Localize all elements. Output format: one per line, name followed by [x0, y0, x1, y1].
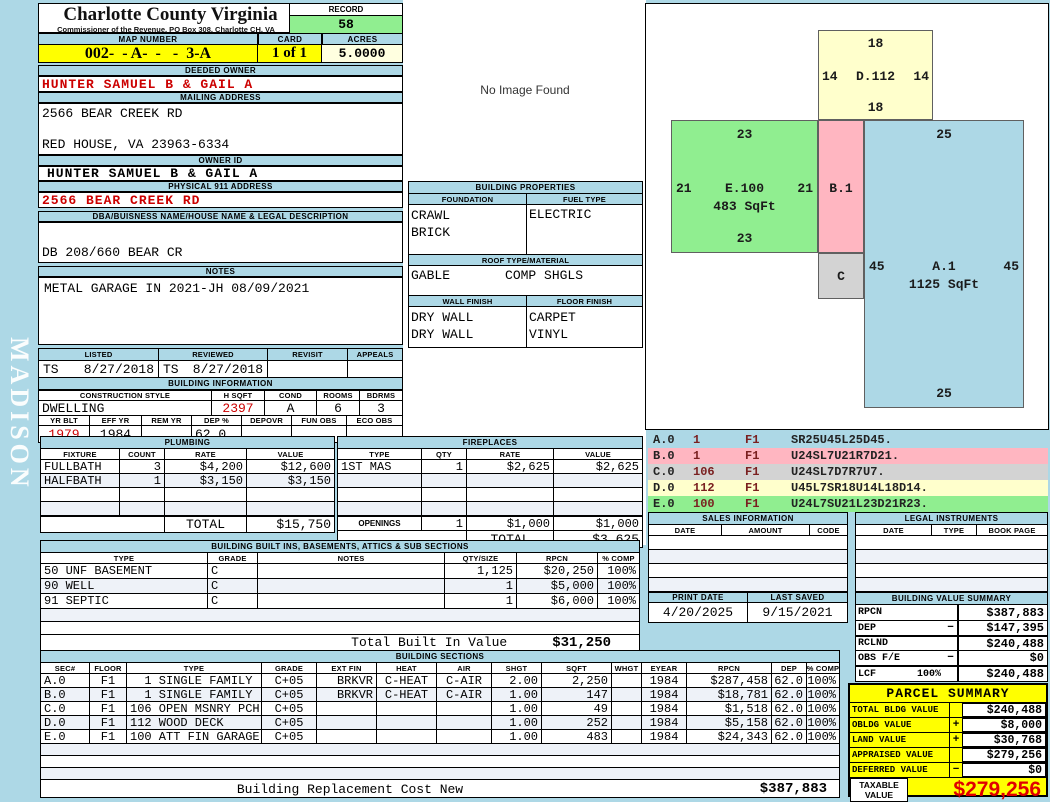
openings-value: $1,000: [553, 517, 642, 530]
vector-floor: F1: [745, 497, 791, 511]
rpcn-cell: $18,781: [686, 688, 771, 701]
building-value-summary-header: BUILDING VALUE SUMMARY: [856, 593, 1047, 605]
empty-row: [41, 501, 334, 515]
empty-row: [856, 577, 1047, 591]
vector-num: 100: [693, 497, 745, 511]
table-row: 90 WELL C 1 $5,000 100%: [41, 578, 639, 593]
acres-value: 5.0000: [322, 45, 403, 63]
comp-cell: 100%: [597, 579, 639, 593]
notes-cell: [257, 579, 444, 593]
floor-cell: F1: [89, 674, 126, 687]
grade-cell: C+05: [261, 674, 316, 687]
shgt-cell: 1.00: [491, 702, 541, 715]
building-properties-header: BUILDING PROPERTIES: [409, 182, 642, 194]
vector-num: 106: [693, 465, 745, 479]
sec-cell: C.0: [41, 702, 89, 715]
whgt-cell: [611, 702, 641, 715]
table-row: 91 SEPTIC C 1 $6,000 100%: [41, 593, 639, 608]
empty-row: [856, 549, 1047, 563]
fuel-type-label: FUEL TYPE: [526, 194, 642, 204]
revisit-label: REVISIT: [267, 349, 347, 360]
sec-cell: B.0: [41, 688, 89, 701]
appeals-cell: [347, 361, 402, 377]
empty-row: [41, 743, 839, 755]
vector-row: C.0106F1U24SL7D7R7U7.: [648, 464, 1048, 480]
vector-code: D.0: [648, 481, 693, 495]
listed-date: 8/27/2018: [84, 362, 154, 377]
empty-row: [649, 563, 847, 577]
floor-col-label: FLOOR: [89, 663, 126, 673]
qty-col-label: QTY/SIZE: [444, 553, 516, 563]
acres-label: ACRES: [322, 33, 403, 45]
notes-box: METAL GARAGE IN 2021-JH 08/09/2021: [38, 277, 403, 345]
floor-finish-label: FLOOR FINISH: [526, 296, 642, 306]
bdrms-label: BDRMS: [359, 391, 402, 400]
extfin-cell: [316, 716, 376, 729]
foundation-line2: BRICK: [411, 225, 450, 240]
dep-cell: 62.0: [771, 674, 806, 687]
dim-bottom: 18: [819, 100, 932, 115]
type-cell: 1 SINGLE FAMILY: [126, 688, 261, 701]
foundation-label: FOUNDATION: [409, 194, 526, 204]
taxable-value-row: TAXABLEVALUE $279,256: [850, 778, 1046, 802]
floor-cell: F1: [89, 688, 126, 701]
parcel-sign: +: [950, 718, 962, 732]
rpcn-cell: $1,518: [686, 702, 771, 715]
summary-row: DEP − $147,395: [856, 620, 1047, 635]
fireplaces-table: FIREPLACES TYPE QTY RATE VALUE 1ST MAS 1…: [337, 436, 643, 548]
dim-top: 25: [865, 127, 1023, 142]
rpcn-col-label: RPCN: [686, 663, 771, 673]
print-date-label: PRINT DATE: [648, 592, 748, 603]
building-sketch-canvas: 23 21 E.100 21 483 SqFt 23 18 14 D.112 1…: [645, 3, 1049, 430]
grade-cell: C: [207, 594, 257, 608]
whgt-cell: [611, 674, 641, 687]
reviewed-label: REVIEWED: [158, 349, 267, 360]
parcel-row: DEFERRED VALUE − $0: [850, 763, 1046, 778]
rate-cell: $3,150: [164, 474, 246, 487]
grade-cell: C+05: [261, 702, 316, 715]
sec-cell: A.0: [41, 674, 89, 687]
empty-row: [41, 608, 639, 621]
parcel-value: $8,000: [962, 718, 1046, 732]
section-name: E.100: [672, 181, 817, 196]
summary-value: $147,395: [957, 621, 1047, 635]
sqft-cell: 252: [541, 716, 611, 729]
summary-row: LCF100% $240,488: [856, 665, 1047, 681]
extfin-cell: [316, 730, 376, 743]
grade-cell: C+05: [261, 716, 316, 729]
bookpage-col-label: BOOK PAGE: [976, 525, 1047, 535]
dep-cell: 62.0: [771, 702, 806, 715]
qty-col-label: QTY: [421, 449, 466, 459]
qty-cell: 1: [444, 594, 516, 608]
reviewed-date: 8/27/2018: [193, 362, 263, 377]
floor-line1: CARPET: [529, 310, 576, 325]
grade-cell: C: [207, 579, 257, 593]
code-col-label: CODE: [809, 525, 847, 535]
shgt-col-label: SHGT: [491, 663, 541, 673]
table-row: 50 UNF BASEMENT C 1,125 $20,250 100%: [41, 563, 639, 578]
shgt-cell: 1.00: [491, 730, 541, 743]
amount-col-label: AMOUNT: [721, 525, 809, 535]
mailing-address-box: 2566 BEAR CREEK RD RED HOUSE, VA 23963-6…: [38, 103, 403, 155]
summary-sign: [944, 637, 957, 650]
built-ins-total-label: Total Built In Value: [351, 635, 507, 650]
grade-col-label: GRADE: [261, 663, 316, 673]
deeded-owner-label: DEEDED OWNER: [38, 65, 403, 76]
section-name: B.1: [819, 181, 863, 196]
qty-cell: 1,125: [444, 564, 516, 578]
last-saved-group: LAST SAVED 9/15/2021: [748, 592, 848, 623]
summary-value: $240,488: [957, 637, 1047, 650]
summary-sign: [944, 667, 957, 681]
vector-code: E.0: [648, 497, 693, 511]
vector-num: 1: [693, 449, 745, 463]
parcel-sign: −: [950, 763, 962, 777]
cond-value: A: [264, 401, 316, 415]
parcel-value: $240,488: [962, 703, 1046, 717]
rpcn-cell: $24,343: [686, 730, 771, 743]
dep-cell: 62.0: [771, 716, 806, 729]
sketch-section-C: C: [818, 253, 864, 299]
dim-top: 18: [819, 36, 932, 51]
parcel-row: OBLDG VALUE + $8,000: [850, 718, 1046, 733]
rpcn-cell: $5,158: [686, 716, 771, 729]
plumbing-total-row: TOTAL $15,750: [41, 515, 334, 532]
parcel-sign: [950, 703, 962, 717]
eyear-cell: 1984: [641, 688, 686, 701]
listed-cell: TS8/27/2018: [39, 361, 158, 377]
rpcn-cell: $5,000: [516, 579, 597, 593]
air-cell: [436, 716, 491, 729]
shgt-cell: 1.00: [491, 688, 541, 701]
parcel-summary-panel: PARCEL SUMMARY TOTAL BLDG VALUE $240,488…: [848, 683, 1048, 797]
value-col-label: VALUE: [553, 449, 642, 459]
built-ins-table: BUILDING BUILT INS, BASEMENTS, ATTICS & …: [40, 540, 640, 651]
sqft-cell: 483: [541, 730, 611, 743]
table-row: A.0F1 1 SINGLE FAMILYC+05BRKVRC-HEATC-AI…: [41, 673, 839, 687]
table-row: 1ST MAS 1 $2,625 $2,625: [338, 459, 642, 473]
heat-cell: C-HEAT: [376, 674, 436, 687]
notes-cell: [257, 564, 444, 578]
openings-qty: 1: [421, 517, 466, 530]
dba-value: DB 208/660 BEAR CR: [42, 245, 182, 260]
dim-bottom: 23: [672, 231, 817, 246]
funobs-label: FUN OBS: [291, 416, 346, 425]
owner-id-value: HUNTER SAMUEL B & GAIL A: [38, 166, 403, 181]
plumbing-total-label: TOTAL: [164, 517, 246, 532]
table-row: B.0F1 1 SINGLE FAMILYC+05BRKVRC-HEATC-AI…: [41, 687, 839, 701]
fixture-cell: HALFBATH: [41, 474, 119, 487]
table-row: C.0F1106 OPEN MSNRY PCHC+051.00491984$1,…: [41, 701, 839, 715]
heat-cell: [376, 730, 436, 743]
count-col-label: COUNT: [119, 449, 164, 459]
wall-line1: DRY WALL: [411, 310, 473, 325]
sqft-cell: 2,250: [541, 674, 611, 687]
date-col-label: DATE: [856, 525, 931, 535]
page-title: Charlotte County Virginia: [53, 4, 288, 26]
fuel-type-value: ELECTRIC: [526, 205, 642, 254]
vector-row: B.01F1U24SL7U21R7D21.: [648, 448, 1048, 464]
building-info-table: BUILDING INFORMATION CONSTRUCTION STYLE …: [38, 377, 403, 443]
ecoobs-label: ECO OBS: [346, 416, 402, 425]
last-saved-label: LAST SAVED: [748, 592, 848, 603]
floor-cell: F1: [89, 716, 126, 729]
type-cell: 112 WOOD DECK: [126, 716, 261, 729]
value-cell: $12,600: [246, 460, 334, 473]
building-info-header: BUILDING INFORMATION: [39, 378, 402, 390]
whgt-cell: [611, 730, 641, 743]
card-group: CARD 1 of 1: [258, 33, 322, 63]
built-ins-header: BUILDING BUILT INS, BASEMENTS, ATTICS & …: [41, 541, 639, 553]
rooms-value: 6: [316, 401, 359, 415]
map-number-group: MAP NUMBER 002- - A- - - 3-A: [38, 33, 258, 63]
empty-row: [649, 549, 847, 563]
type-col-label: TYPE: [931, 525, 976, 535]
grade-cell: C+05: [261, 688, 316, 701]
roof-type-value: GABLE: [409, 266, 450, 283]
sketch-section-E: 23 21 E.100 21 483 SqFt 23: [671, 120, 818, 253]
last-saved-value: 9/15/2021: [748, 603, 848, 623]
dim-right: 21: [797, 181, 813, 196]
vector-floor: F1: [745, 449, 791, 463]
section-sqft: 483 SqFt: [672, 199, 817, 214]
plumbing-header: PLUMBING: [41, 437, 334, 449]
taxable-label-line1: TAXABLE: [859, 780, 899, 790]
comp-cell: 100%: [806, 730, 839, 743]
vector-path: U45L7SR18U14L18D14.: [791, 481, 928, 495]
extfin-cell: [316, 702, 376, 715]
empty-row: [649, 577, 847, 591]
notes-col-label: NOTES: [257, 553, 444, 563]
comp-cell: 100%: [806, 716, 839, 729]
review-table: LISTED REVIEWED REVISIT APPEALS TS8/27/2…: [38, 348, 403, 378]
section-name: A.1: [865, 259, 1023, 274]
section-name: C: [819, 269, 863, 284]
roof-label: ROOF TYPE/MATERIAL: [409, 255, 642, 265]
shgt-cell: 1.00: [491, 716, 541, 729]
summary-label: LCF100%: [856, 667, 944, 681]
rooms-label: ROOMS: [316, 391, 359, 400]
county-watermark: MADISON: [4, 337, 34, 467]
sketch-section-B: B.1: [818, 120, 864, 253]
dim-top: 23: [672, 127, 817, 142]
print-date-group: PRINT DATE 4/20/2025: [648, 592, 748, 623]
remyr-label: REM YR: [141, 416, 191, 425]
record-value: 58: [289, 16, 403, 34]
eyear-cell: 1984: [641, 716, 686, 729]
mailing-line1: 2566 BEAR CREEK RD: [42, 106, 182, 121]
empty-row: [856, 563, 1047, 577]
summary-value: $387,883: [957, 605, 1047, 620]
wall-finish-label: WALL FINISH: [409, 296, 526, 306]
replacement-cost-label: Building Replacement Cost New: [41, 782, 659, 797]
summary-label: RPCN: [856, 605, 944, 620]
owner-id-label: OWNER ID: [38, 155, 403, 166]
replacement-cost-row: Building Replacement Cost New $387,883: [40, 779, 840, 798]
empty-row: [41, 621, 639, 634]
air-cell: C-AIR: [436, 674, 491, 687]
value-cell: $2,625: [553, 460, 642, 473]
dim-right: 45: [1003, 259, 1019, 274]
sketch-section-D: 18 14 D.112 14 18: [818, 30, 933, 120]
vector-floor: F1: [745, 481, 791, 495]
building-value-summary-table: BUILDING VALUE SUMMARY RPCN $387,883 DEP…: [855, 592, 1048, 682]
whgt-col-label: WHGT: [611, 663, 641, 673]
sqft-cell: 49: [541, 702, 611, 715]
floor-line2: VINYL: [529, 327, 568, 342]
acres-group: ACRES 5.0000: [322, 33, 403, 63]
notes-cell: [257, 594, 444, 608]
table-row: HALFBATH 1 $3,150 $3,150: [41, 473, 334, 487]
effyr-label: EFF YR: [89, 416, 141, 425]
sketch-vector-list: A.01F1SR25U45L25D45. B.01F1U24SL7U21R7D2…: [648, 432, 1048, 512]
construction-style-value: DWELLING: [39, 401, 211, 415]
air-cell: [436, 730, 491, 743]
eyear-cell: 1984: [641, 674, 686, 687]
depovr-label: DEPOVR: [241, 416, 291, 425]
eyear-cell: 1984: [641, 702, 686, 715]
no-image-placeholder: No Image Found: [405, 83, 645, 97]
parcel-sign: [950, 748, 962, 762]
building-sections-table: BUILDING SECTIONS SEC# FLOOR TYPE GRADE …: [40, 650, 840, 780]
empty-row: [41, 767, 839, 779]
vector-path: SR25U45L25D45.: [791, 433, 892, 447]
fixture-cell: FULLBATH: [41, 460, 119, 473]
parcel-label: OBLDG VALUE: [850, 718, 950, 732]
empty-row: [338, 473, 642, 487]
sales-information-header: SALES INFORMATION: [649, 513, 847, 525]
foundation-value: CRAWLBRICK: [409, 205, 526, 254]
rpcn-cell: $6,000: [516, 594, 597, 608]
comp-cell: 100%: [597, 564, 639, 578]
deeded-owner-value: HUNTER SAMUEL B & GAIL A: [38, 76, 403, 92]
floor-cell: F1: [89, 702, 126, 715]
empty-row: [338, 501, 642, 515]
legal-instruments-header: LEGAL INSTRUMENTS: [856, 513, 1047, 525]
air-cell: [436, 702, 491, 715]
map-number-value: 002- - A- - - 3-A: [38, 45, 258, 63]
type-cell: 90 WELL: [41, 579, 207, 593]
notes-label: NOTES: [38, 266, 403, 277]
empty-row: [338, 487, 642, 501]
empty-row: [41, 487, 334, 501]
rate-col-label: RATE: [164, 449, 246, 459]
building-properties-table: BUILDING PROPERTIES FOUNDATION FUEL TYPE…: [408, 181, 643, 348]
parcel-label: APPRAISED VALUE: [850, 748, 950, 762]
dep-cell: 62.0: [771, 730, 806, 743]
qty-cell: 1: [421, 460, 466, 473]
comp-cell: 100%: [597, 594, 639, 608]
heat-cell: [376, 702, 436, 715]
table-row: FULLBATH 3 $4,200 $12,600: [41, 459, 334, 473]
fixture-col-label: FIXTURE: [41, 449, 119, 459]
date-col-label: DATE: [649, 525, 721, 535]
rate-col-label: RATE: [466, 449, 553, 459]
taxable-value-label: TAXABLEVALUE: [850, 778, 908, 802]
parcel-value: $279,256: [962, 748, 1046, 762]
summary-sign: −: [944, 651, 957, 665]
eyear-col-label: EYEAR: [641, 663, 686, 673]
heat-cell: C-HEAT: [376, 688, 436, 701]
extfin-col-label: EXT FIN: [316, 663, 376, 673]
dep-cell: 62.0: [771, 688, 806, 701]
parcel-value: $30,768: [962, 733, 1046, 747]
taxable-value: $279,256: [908, 778, 1046, 802]
parcel-value: $0: [962, 763, 1046, 777]
eyear-cell: 1984: [641, 730, 686, 743]
type-col-label: TYPE: [41, 553, 207, 563]
roof-value: GABLE COMP SHGLS: [409, 266, 642, 295]
rpcn-cell: $287,458: [686, 674, 771, 687]
reviewed-cell: TS8/27/2018: [158, 361, 267, 377]
plumbing-table: PLUMBING FIXTURE COUNT RATE VALUE FULLBA…: [40, 436, 335, 533]
extfin-cell: BRKVR: [316, 688, 376, 701]
legal-instruments-table: LEGAL INSTRUMENTS DATE TYPE BOOK PAGE: [855, 512, 1048, 592]
sec-cell: D.0: [41, 716, 89, 729]
mailing-line2: RED HOUSE, VA 23963-6334: [42, 137, 229, 152]
grade-col-label: GRADE: [207, 553, 257, 563]
print-date-value: 4/20/2025: [648, 603, 748, 623]
vector-floor: F1: [745, 433, 791, 447]
dba-box: DB 208/660 BEAR CR: [38, 222, 403, 263]
building-sections-header: BUILDING SECTIONS: [41, 651, 839, 663]
notes-value: METAL GARAGE IN 2021-JH 08/09/2021: [44, 281, 309, 296]
heat-cell: [376, 716, 436, 729]
lcf-percent: 100%: [917, 669, 941, 680]
foundation-line1: CRAWL: [411, 208, 450, 223]
empty-row: [649, 535, 847, 549]
property-record-card: MADISON Charlotte County Virginia Commis…: [0, 0, 1050, 800]
section-sqft: 1125 SqFt: [865, 277, 1023, 292]
sec-col-label: SEC#: [41, 663, 89, 673]
bdrms-value: 3: [359, 401, 402, 415]
parcel-label: LAND VALUE: [850, 733, 950, 747]
qty-cell: 1: [444, 579, 516, 593]
listed-by: TS: [43, 362, 59, 377]
parcel-sign: +: [950, 733, 962, 747]
vector-row: A.01F1SR25U45L25D45.: [648, 432, 1048, 448]
vector-path: U24SL7D7R7U7.: [791, 465, 885, 479]
floor-cell: F1: [89, 730, 126, 743]
comp-col-label: % COMP: [806, 663, 839, 673]
vector-code: C.0: [648, 465, 693, 479]
grade-cell: C+05: [261, 730, 316, 743]
summary-sign: −: [944, 621, 957, 635]
title-box: Charlotte County Virginia Commissioner o…: [38, 3, 403, 33]
count-cell: 3: [119, 460, 164, 473]
built-ins-total-value: $31,250: [552, 635, 611, 651]
fireplaces-header: FIREPLACES: [338, 437, 642, 449]
wall-finish-value: DRY WALLDRY WALL: [409, 307, 526, 347]
summary-row: RCLND $240,488: [856, 635, 1047, 650]
type-cell: 100 ATT FIN GARAGE: [126, 730, 261, 743]
parcel-label: TOTAL BLDG VALUE: [850, 703, 950, 717]
listed-label: LISTED: [39, 349, 158, 360]
dba-label: DBA/BUISNESS NAME/HOUSE NAME & LEGAL DES…: [38, 211, 403, 222]
vector-code: B.0: [648, 449, 693, 463]
type-cell: 91 SEPTIC: [41, 594, 207, 608]
rate-cell: $4,200: [164, 460, 246, 473]
parcel-summary-title: PARCEL SUMMARY: [850, 685, 1046, 703]
fuel-line1: ELECTRIC: [527, 205, 591, 222]
appeals-label: APPEALS: [347, 349, 402, 360]
vector-num: 1: [693, 433, 745, 447]
sales-information-table: SALES INFORMATION DATE AMOUNT CODE: [648, 512, 848, 592]
reviewed-by: TS: [163, 362, 179, 377]
whgt-cell: [611, 716, 641, 729]
